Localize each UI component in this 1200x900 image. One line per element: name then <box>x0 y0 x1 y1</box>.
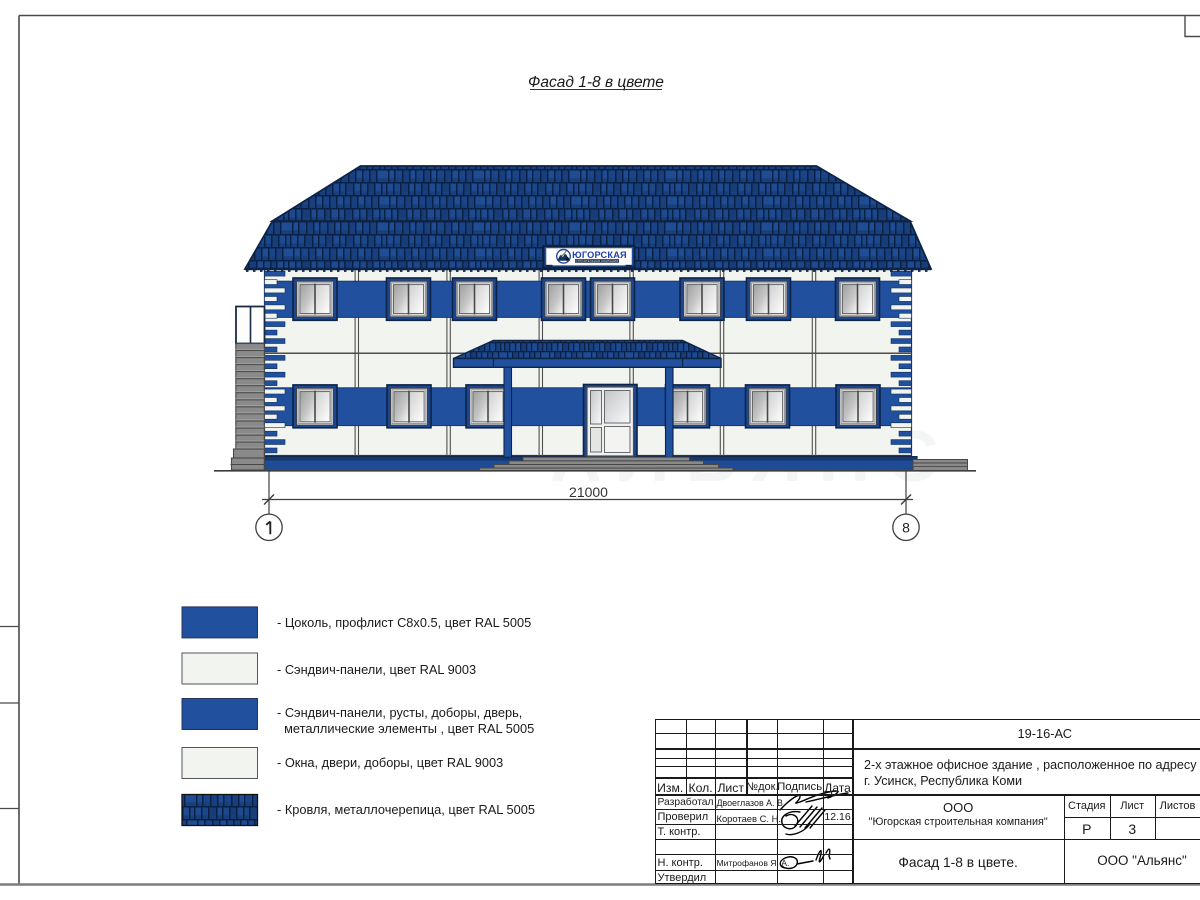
svg-text:8: 8 <box>902 519 910 535</box>
svg-text:ЮГОРСКАЯ: ЮГОРСКАЯ <box>572 250 627 260</box>
svg-text:21000: 21000 <box>569 484 608 500</box>
svg-text:СТРОИТЕЛЬНАЯ КОМПАНИЯ: СТРОИТЕЛЬНАЯ КОМПАНИЯ <box>575 259 618 263</box>
